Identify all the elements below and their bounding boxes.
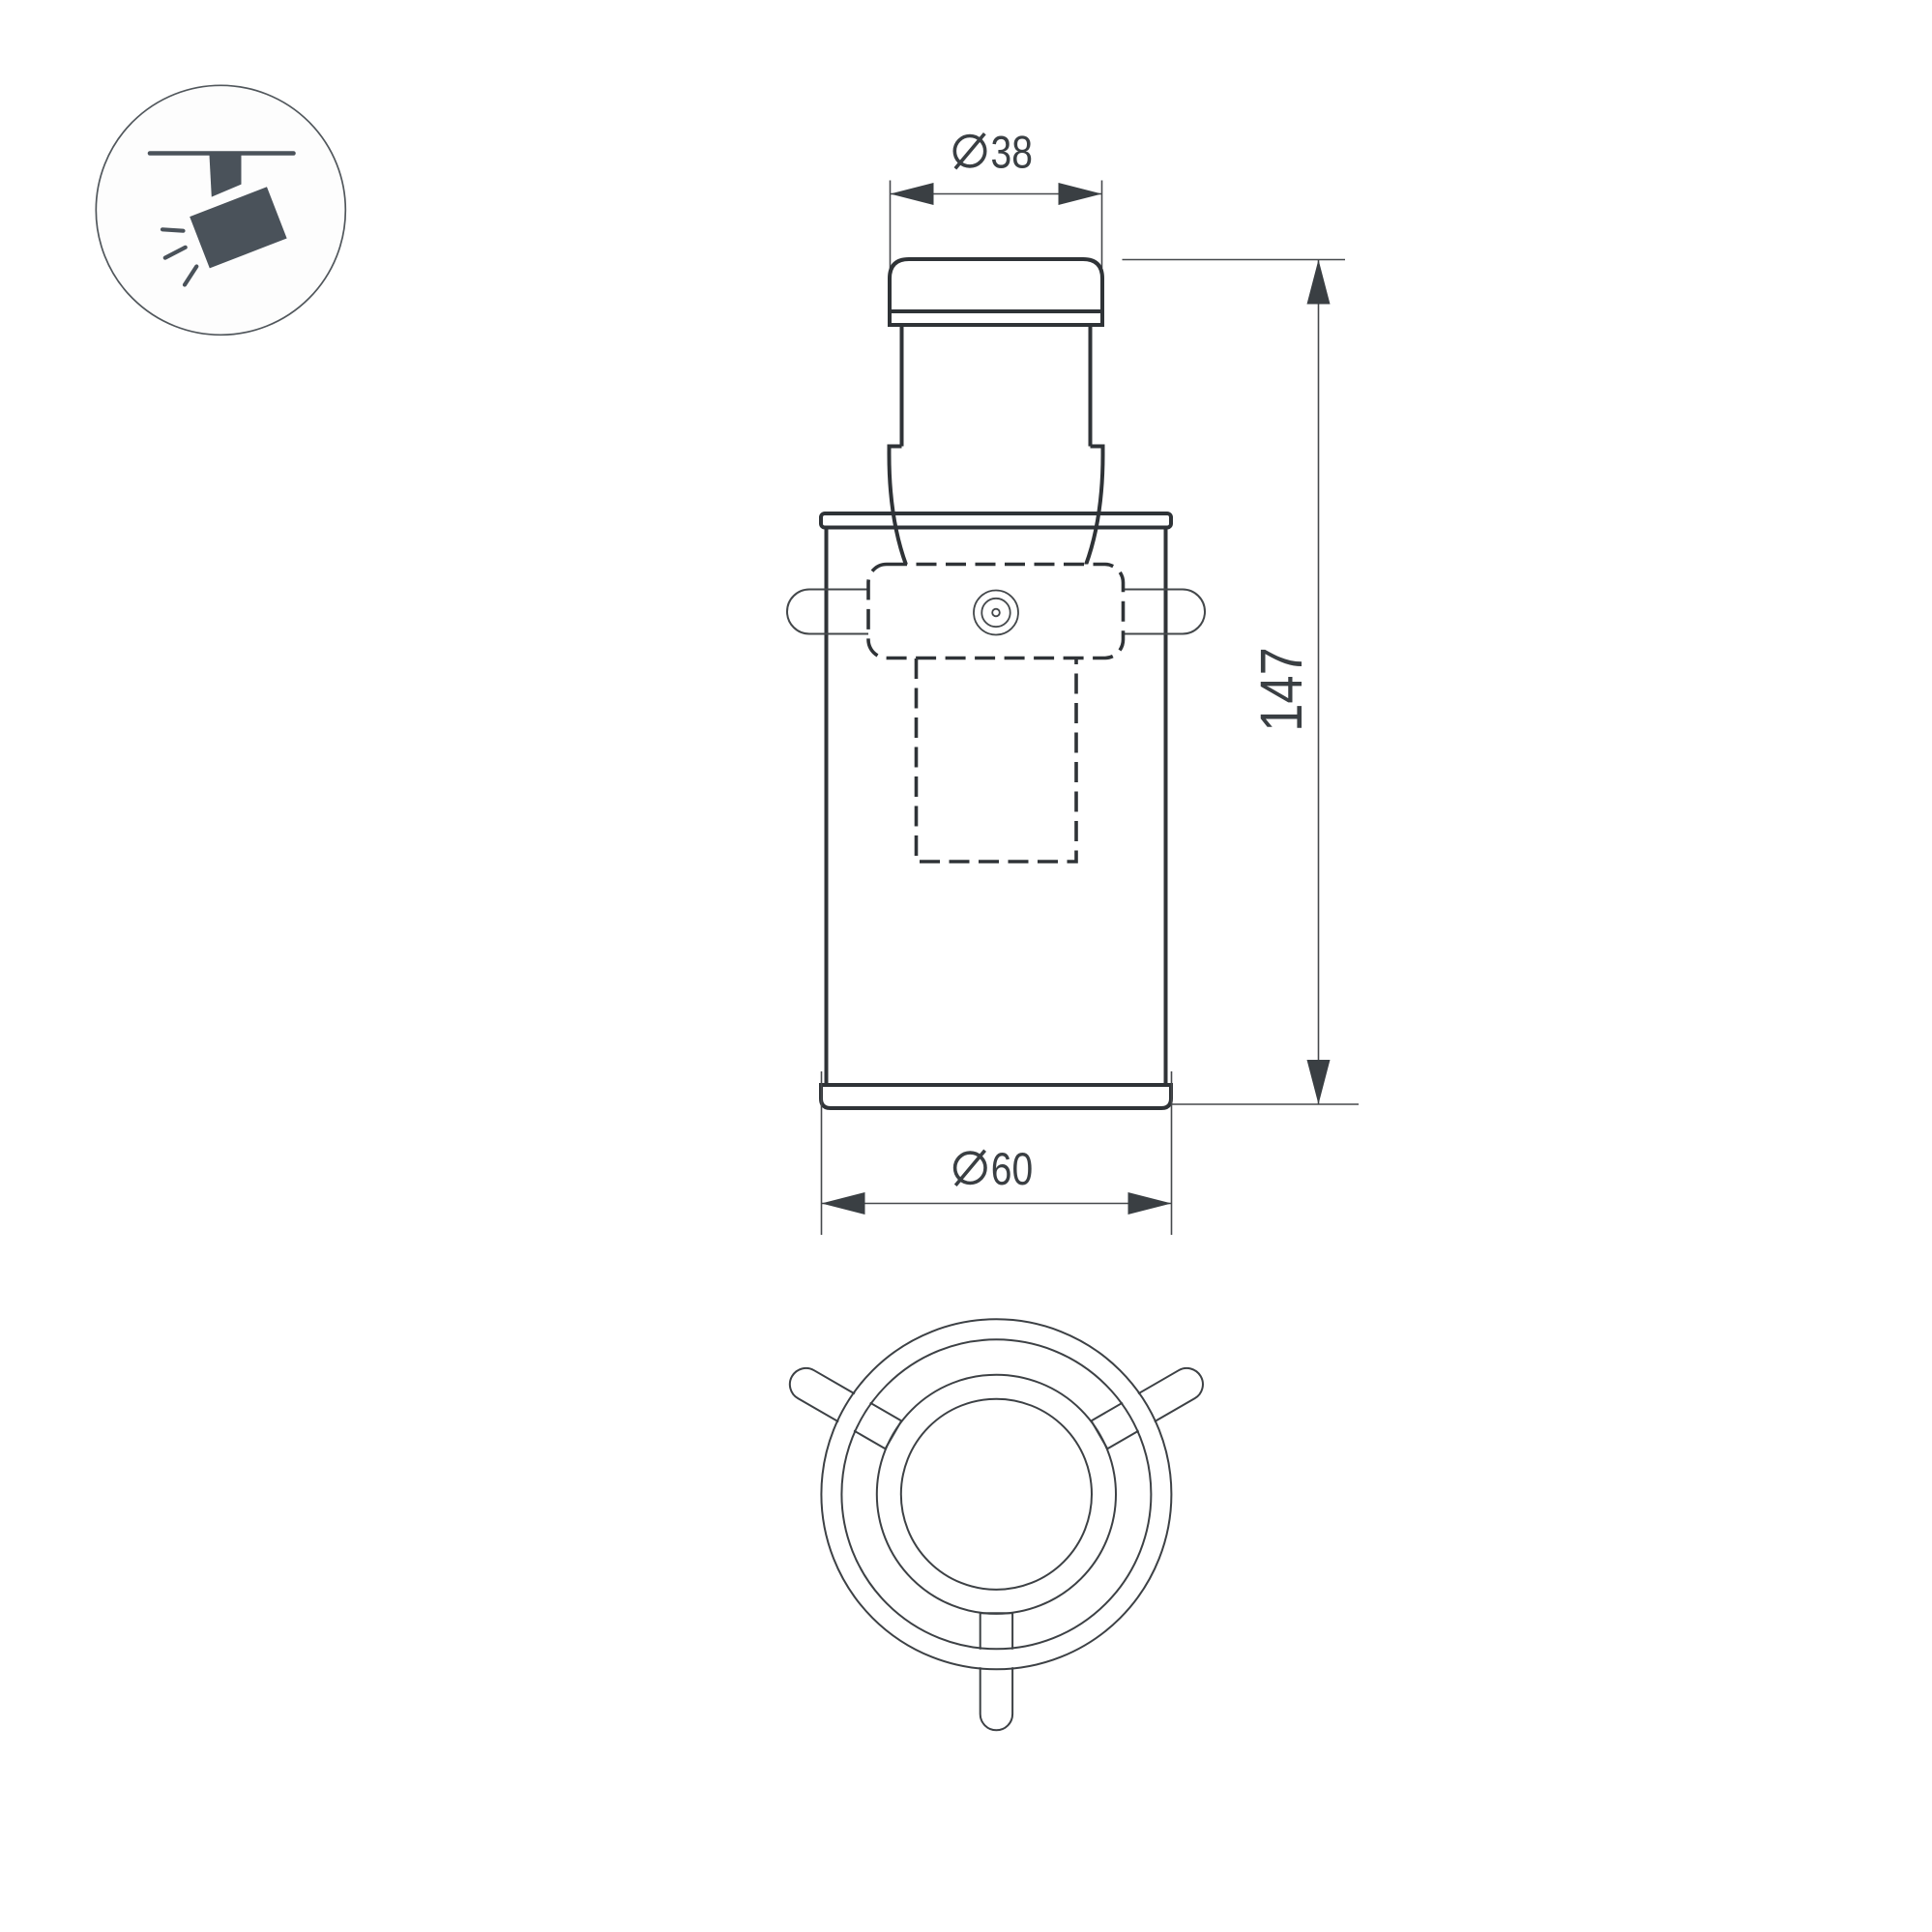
svg-text:60: 60 [991, 1145, 1033, 1195]
svg-text:38: 38 [991, 128, 1033, 178]
svg-text:147: 147 [1248, 647, 1315, 732]
